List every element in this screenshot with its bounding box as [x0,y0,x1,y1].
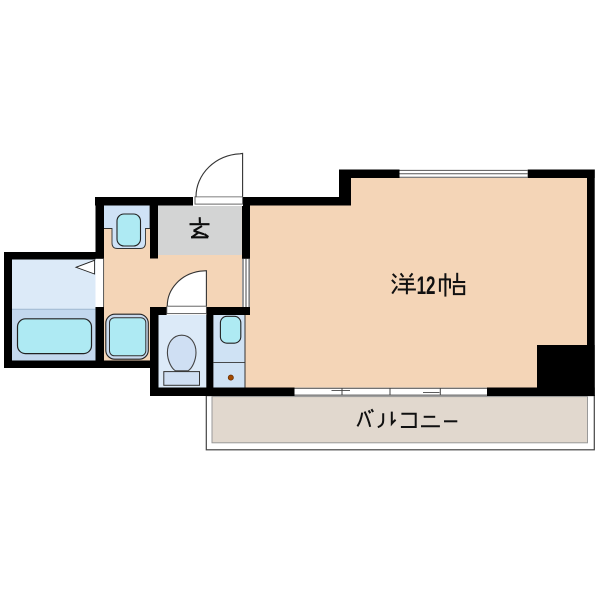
svg-text:12: 12 [417,272,436,300]
